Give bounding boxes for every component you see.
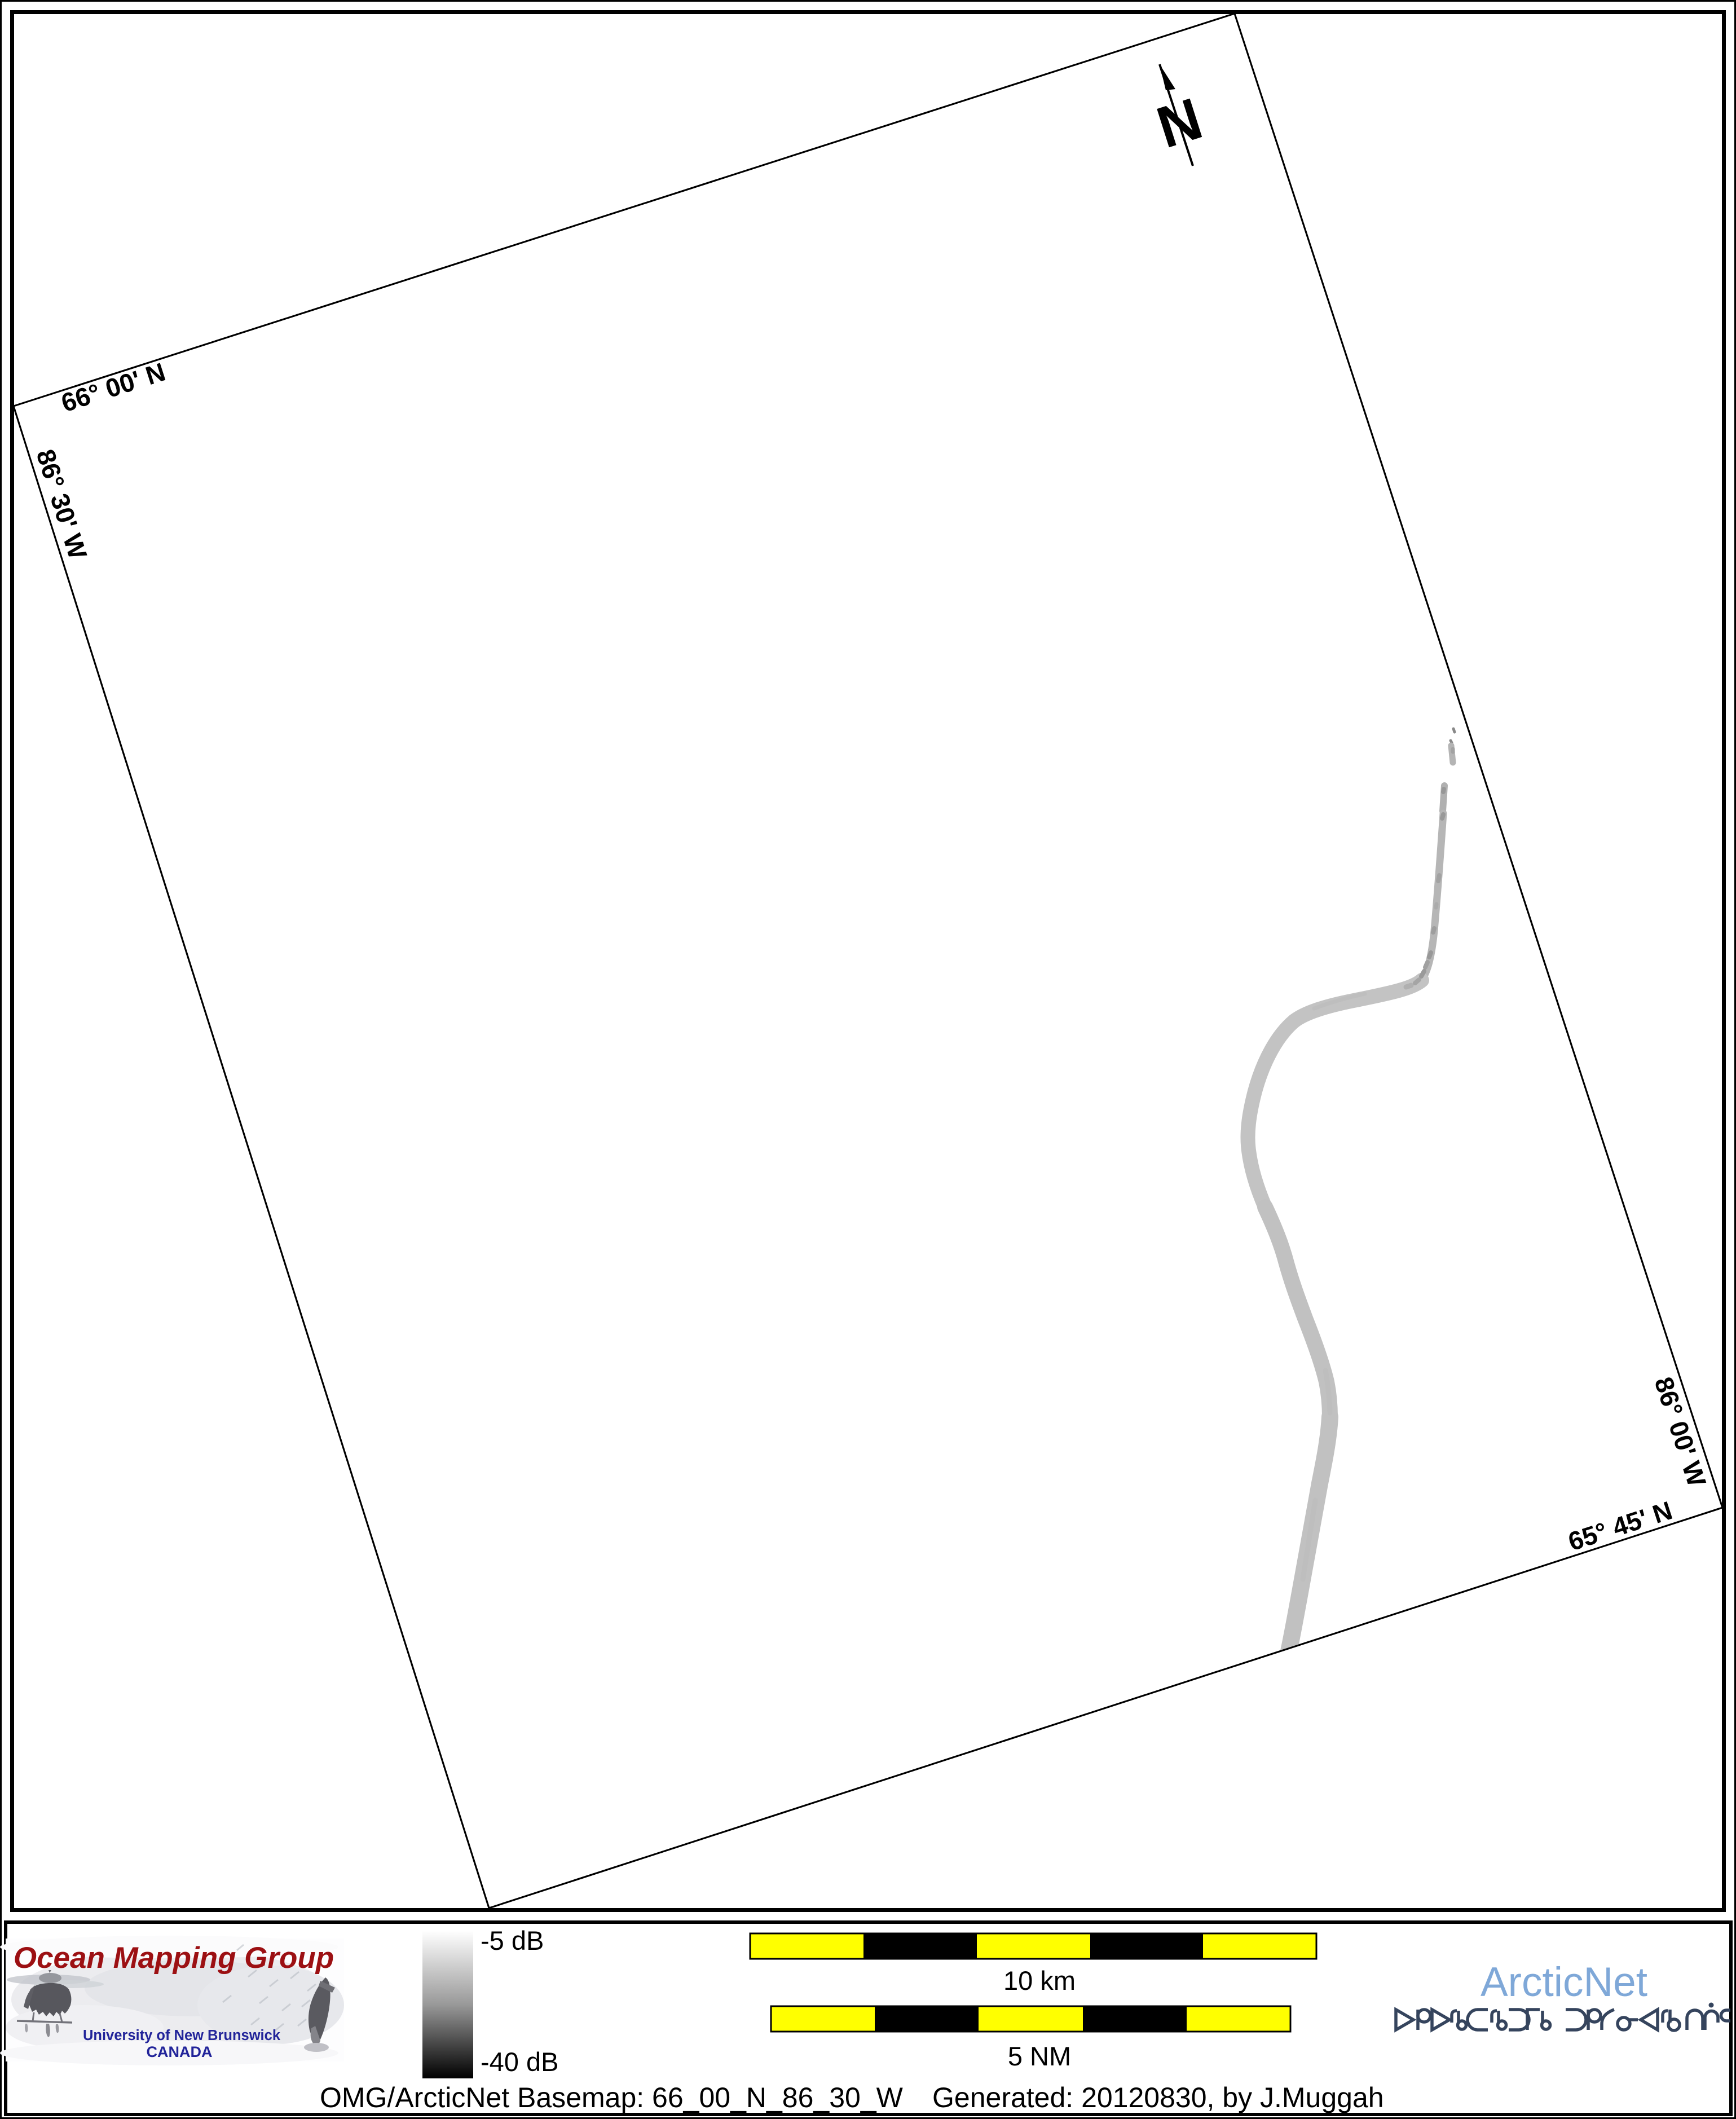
svg-text:-40 dB: -40 dB	[481, 2047, 558, 2077]
svg-text:OMG/ArcticNet Basemap: 66_00_N: OMG/ArcticNet Basemap: 66_00_N_86_30_WGe…	[320, 2082, 1384, 2113]
svg-text:CANADA: CANADA	[147, 2043, 213, 2060]
svg-text:10 km: 10 km	[1003, 1966, 1076, 1995]
svg-text:5 NM: 5 NM	[1008, 2041, 1071, 2071]
svg-text:ArcticNet: ArcticNet	[1481, 1959, 1647, 2005]
svg-text:-5 dB: -5 dB	[481, 1926, 544, 1955]
svg-text:University of New Brunswick: University of New Brunswick	[83, 2028, 281, 2043]
svg-text:Ocean Mapping Group: Ocean Mapping Group	[14, 1941, 334, 1975]
